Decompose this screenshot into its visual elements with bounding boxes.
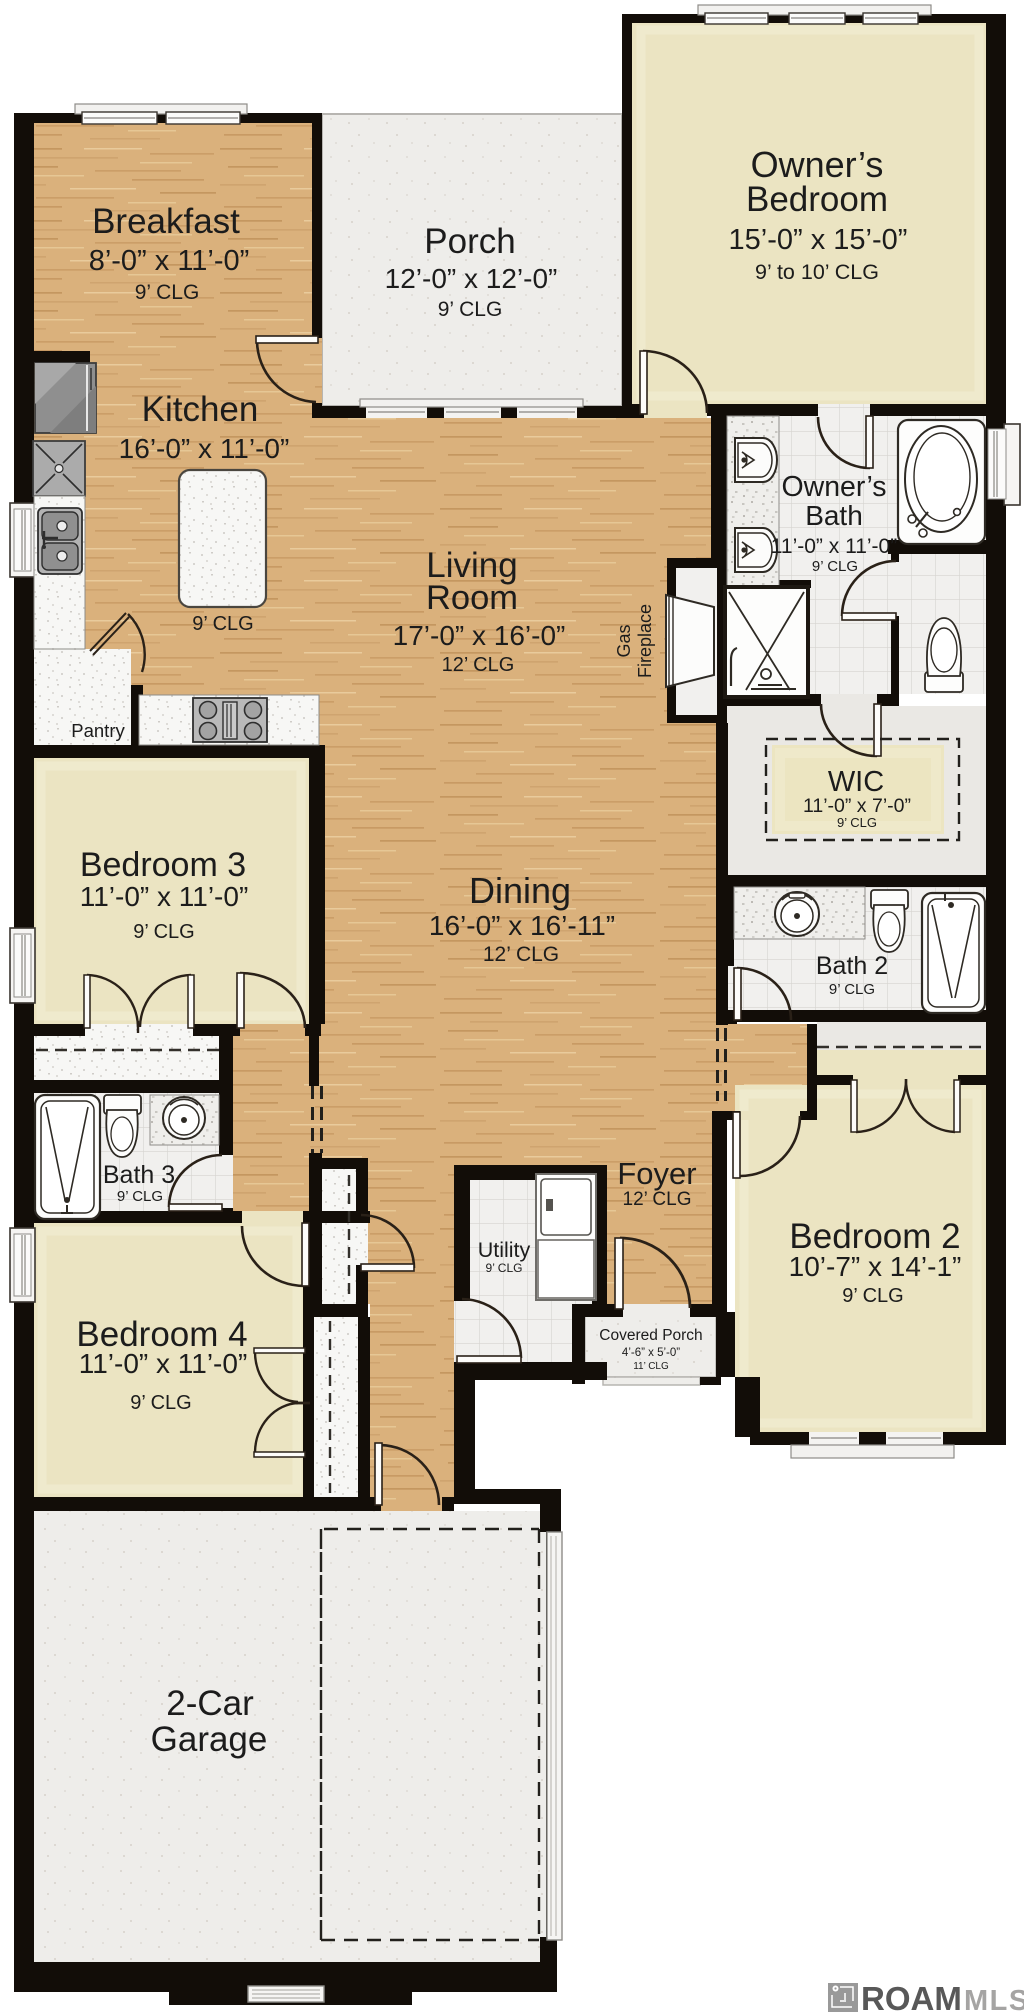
svg-text:9’ CLG: 9’ CLG: [812, 558, 858, 575]
svg-text:Pantry: Pantry: [71, 720, 125, 741]
svg-text:12’ CLG: 12’ CLG: [442, 654, 515, 676]
svg-text:WIC: WIC: [828, 766, 884, 798]
svg-text:16’-0” x 16’-11”: 16’-0” x 16’-11”: [429, 910, 615, 941]
svg-text:4’-6” x 5’-0”: 4’-6” x 5’-0”: [622, 1347, 680, 1359]
svg-text:Porch: Porch: [424, 222, 515, 261]
svg-text:9’ CLG: 9’ CLG: [829, 981, 875, 998]
svg-text:Bath 2: Bath 2: [816, 952, 888, 980]
svg-text:Garage: Garage: [151, 1720, 268, 1759]
svg-text:11’-0” x 7’-0”: 11’-0” x 7’-0”: [803, 795, 911, 817]
svg-text:11’ CLG: 11’ CLG: [633, 1361, 669, 1372]
svg-text:9’ CLG: 9’ CLG: [438, 298, 503, 321]
svg-text:11’-0” x 11’-0”: 11’-0” x 11’-0”: [79, 1348, 248, 1379]
svg-text:10’-7” x 14’-1”: 10’-7” x 14’-1”: [789, 1251, 962, 1282]
svg-text:9’ CLG: 9’ CLG: [130, 1392, 192, 1414]
svg-text:Owner’s: Owner’s: [751, 144, 884, 185]
svg-text:MLS: MLS: [964, 1985, 1024, 2012]
svg-text:9’ CLG: 9’ CLG: [842, 1285, 904, 1307]
svg-text:8’-0” x 11’-0”: 8’-0” x 11’-0”: [89, 245, 250, 277]
svg-text:9’ CLG: 9’ CLG: [837, 815, 877, 830]
svg-text:Bedroom 3: Bedroom 3: [80, 846, 246, 884]
svg-text:ROAM: ROAM: [861, 1980, 962, 2012]
svg-text:Gas: Gas: [614, 624, 634, 657]
svg-text:9’ CLG: 9’ CLG: [486, 1261, 523, 1275]
svg-text:11’-0” x 11’-0”: 11’-0” x 11’-0”: [80, 881, 249, 912]
svg-text:Owner’s: Owner’s: [781, 471, 886, 503]
svg-text:9’ CLG: 9’ CLG: [133, 921, 195, 943]
svg-text:Bath 3: Bath 3: [103, 1161, 175, 1189]
svg-text:2-Car: 2-Car: [166, 1684, 254, 1723]
svg-text:15’-0” x 15’-0”: 15’-0” x 15’-0”: [729, 224, 908, 256]
svg-text:17’-0” x 16’-0”: 17’-0” x 16’-0”: [393, 620, 566, 651]
svg-text:9’ CLG: 9’ CLG: [192, 613, 254, 635]
svg-text:9’ CLG: 9’ CLG: [117, 1188, 163, 1205]
svg-text:12’-0” x 12’-0”: 12’-0” x 12’-0”: [385, 263, 558, 294]
svg-text:9’ CLG: 9’ CLG: [135, 281, 200, 304]
svg-text:Bedroom: Bedroom: [746, 180, 888, 219]
svg-text:Foyer: Foyer: [617, 1156, 696, 1191]
svg-text:12’ CLG: 12’ CLG: [623, 1189, 692, 1210]
svg-text:Fireplace: Fireplace: [635, 604, 655, 678]
svg-text:Utility: Utility: [478, 1238, 531, 1262]
svg-text:Breakfast: Breakfast: [92, 202, 240, 241]
svg-text:16’-0” x 11’-0”: 16’-0” x 11’-0”: [119, 433, 290, 464]
svg-text:Dining: Dining: [469, 870, 571, 911]
svg-text:Bath: Bath: [805, 500, 863, 531]
svg-text:9’ to 10’ CLG: 9’ to 10’ CLG: [755, 260, 879, 284]
svg-text:Covered Porch: Covered Porch: [599, 1327, 702, 1344]
svg-text:Room: Room: [426, 579, 518, 617]
svg-text:Kitchen: Kitchen: [142, 390, 259, 429]
svg-text:12’ CLG: 12’ CLG: [483, 943, 559, 966]
svg-text:11’-0” x 11’-0”: 11’-0” x 11’-0”: [771, 535, 897, 558]
